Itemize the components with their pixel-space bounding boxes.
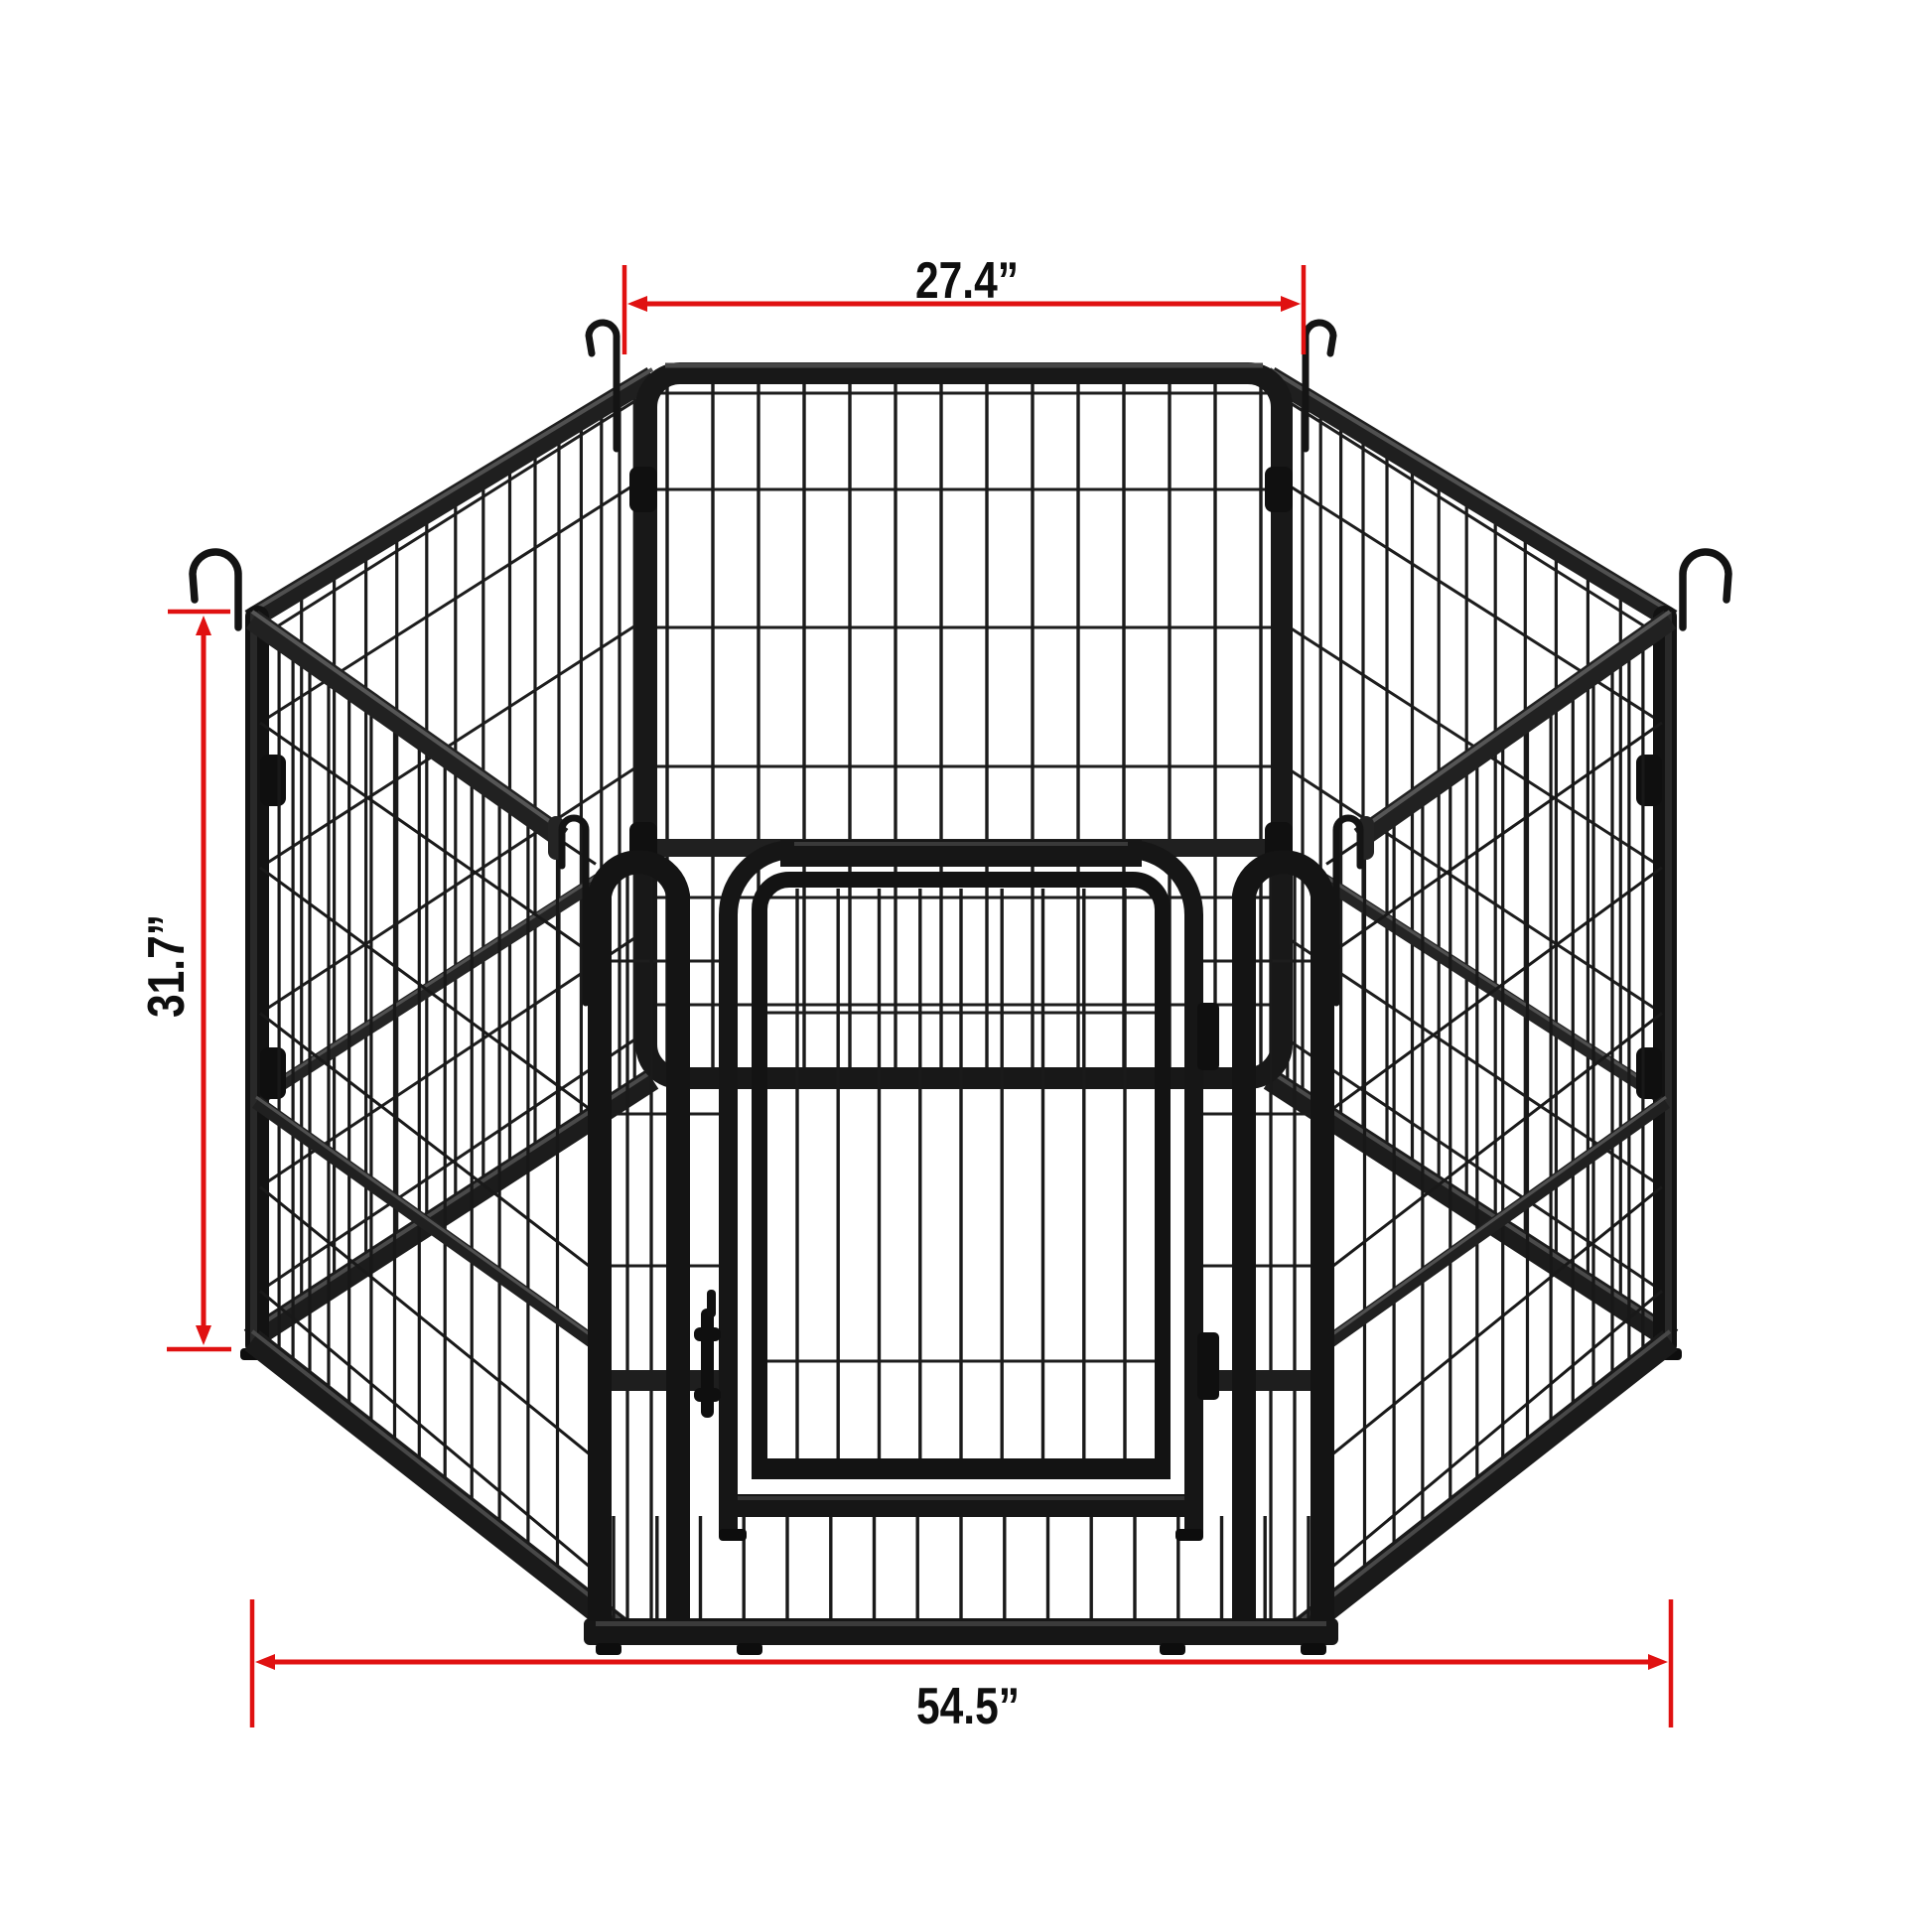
svg-text:31.7”: 31.7” xyxy=(138,914,196,1018)
svg-text:54.5”: 54.5” xyxy=(916,1678,1020,1735)
svg-text:27.4”: 27.4” xyxy=(915,252,1019,310)
